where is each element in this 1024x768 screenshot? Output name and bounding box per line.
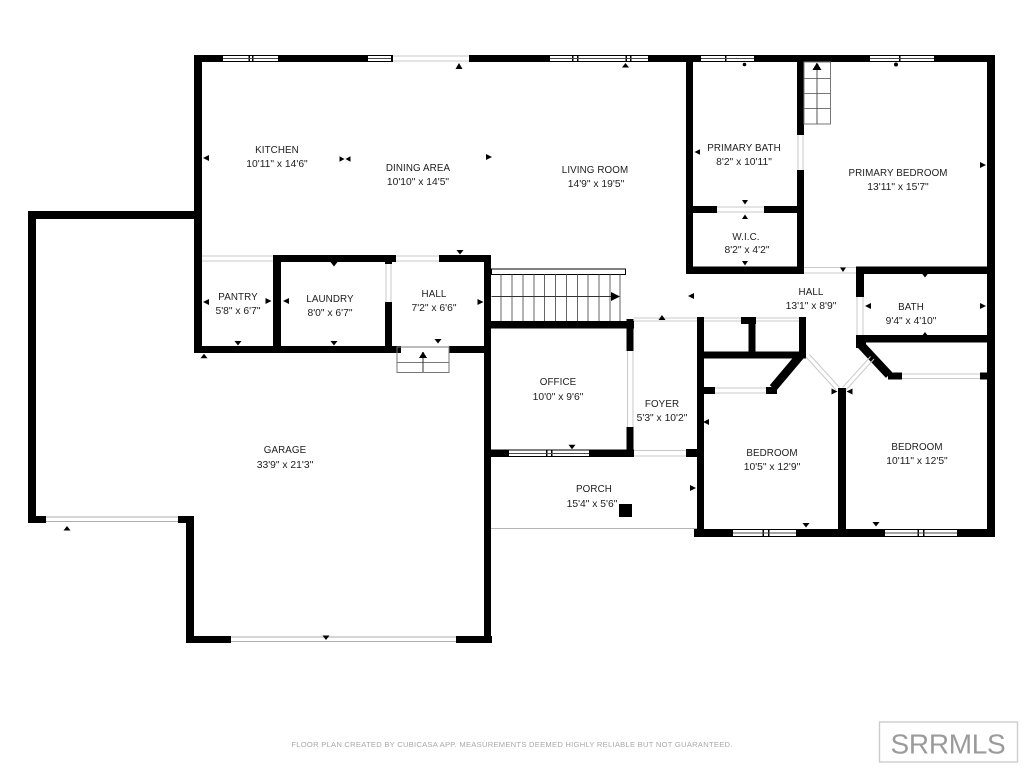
svg-text:9'4" x 4'10": 9'4" x 4'10" bbox=[886, 316, 937, 327]
svg-text:PRIMARY BEDROOM: PRIMARY BEDROOM bbox=[848, 168, 947, 179]
svg-text:7'2" x 6'6": 7'2" x 6'6" bbox=[411, 303, 456, 314]
svg-text:FOYER: FOYER bbox=[645, 399, 679, 410]
svg-text:FLOOR PLAN CREATED BY CUBICASA: FLOOR PLAN CREATED BY CUBICASA APP. MEAS… bbox=[291, 740, 732, 749]
svg-text:10'11" x 14'6": 10'11" x 14'6" bbox=[246, 159, 308, 170]
svg-text:LAUNDRY: LAUNDRY bbox=[306, 294, 354, 305]
svg-text:KITCHEN: KITCHEN bbox=[255, 145, 299, 156]
svg-text:8'2" x 4'2": 8'2" x 4'2" bbox=[724, 245, 769, 256]
svg-text:33'9" x 21'3": 33'9" x 21'3" bbox=[257, 460, 314, 471]
svg-text:BATH: BATH bbox=[898, 302, 924, 313]
svg-text:GARAGE: GARAGE bbox=[264, 445, 307, 456]
svg-text:BEDROOM: BEDROOM bbox=[746, 448, 797, 459]
svg-text:13'1" x 8'9": 13'1" x 8'9" bbox=[786, 301, 837, 312]
svg-text:HALL: HALL bbox=[422, 289, 447, 300]
svg-text:W.I.C.: W.I.C. bbox=[732, 232, 759, 243]
svg-text:10'5" x 12'9": 10'5" x 12'9" bbox=[744, 462, 801, 473]
svg-text:10'0" x 9'6": 10'0" x 9'6" bbox=[533, 392, 584, 403]
svg-text:8'2" x 10'11": 8'2" x 10'11" bbox=[716, 157, 772, 168]
svg-text:5'8" x 6'7": 5'8" x 6'7" bbox=[215, 306, 260, 317]
svg-text:HALL: HALL bbox=[799, 287, 824, 298]
svg-text:BEDROOM: BEDROOM bbox=[891, 442, 942, 453]
svg-text:DINING AREA: DINING AREA bbox=[386, 163, 451, 174]
svg-text:OFFICE: OFFICE bbox=[540, 377, 577, 388]
svg-text:PANTRY: PANTRY bbox=[218, 292, 258, 303]
svg-text:10'11" x 12'5": 10'11" x 12'5" bbox=[886, 456, 948, 467]
svg-text:14'9" x 19'5": 14'9" x 19'5" bbox=[568, 179, 625, 190]
svg-text:LIVING ROOM: LIVING ROOM bbox=[562, 165, 628, 176]
svg-text:13'11" x 15'7": 13'11" x 15'7" bbox=[867, 182, 929, 193]
svg-text:SRRMLS: SRRMLS bbox=[891, 729, 1006, 760]
svg-text:PORCH: PORCH bbox=[576, 484, 612, 495]
svg-text:15'4" x 5'6": 15'4" x 5'6" bbox=[567, 499, 618, 510]
svg-text:5'3" x 10'2": 5'3" x 10'2" bbox=[637, 413, 688, 424]
svg-text:10'10" x 14'5": 10'10" x 14'5" bbox=[387, 177, 450, 188]
svg-text:PRIMARY BATH: PRIMARY BATH bbox=[707, 143, 781, 154]
svg-text:8'0" x 6'7": 8'0" x 6'7" bbox=[307, 308, 352, 319]
